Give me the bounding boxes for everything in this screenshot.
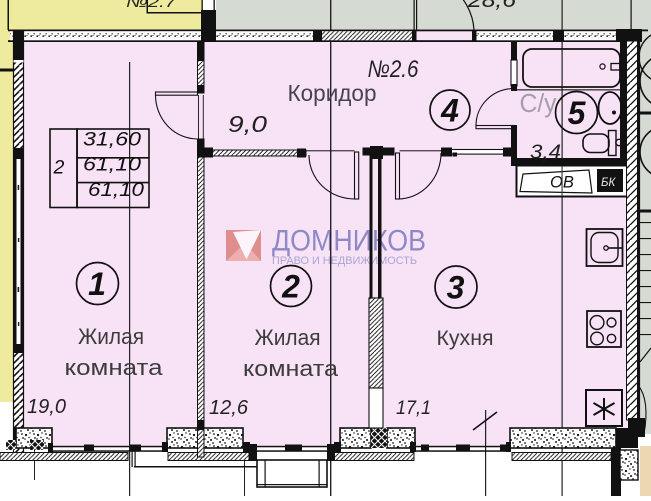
svg-text:3,4: 3,4	[530, 142, 561, 164]
svg-text:9,0: 9,0	[228, 111, 267, 137]
svg-text:3: 3	[447, 270, 465, 306]
svg-text:БК: БК	[601, 177, 616, 189]
svg-text:28,6: 28,6	[467, 0, 517, 12]
svg-text:31,60: 31,60	[83, 129, 141, 151]
svg-text:61,10: 61,10	[88, 179, 144, 201]
svg-text:12,6: 12,6	[209, 397, 249, 419]
svg-text:комната: комната	[243, 356, 339, 381]
svg-text:19,0: 19,0	[27, 396, 66, 418]
svg-text:комната: комната	[65, 355, 164, 380]
svg-text:№2.7: №2.7	[126, 0, 177, 11]
svg-text:2: 2	[281, 269, 300, 305]
svg-text:2: 2	[53, 157, 65, 179]
svg-text:5: 5	[568, 95, 587, 131]
svg-text:Коридор: Коридор	[288, 80, 377, 106]
svg-text:ДОМНИКОВ: ДОМНИКОВ	[272, 225, 426, 258]
svg-text:Жилая: Жилая	[78, 324, 144, 349]
svg-text:С/у: С/у	[520, 90, 557, 118]
svg-text:№2.6: №2.6	[368, 56, 420, 83]
svg-text:61,10: 61,10	[83, 154, 141, 176]
svg-text:1: 1	[88, 266, 106, 302]
svg-text:4: 4	[440, 93, 459, 129]
svg-text:Кухня: Кухня	[437, 326, 494, 350]
svg-text:17,1: 17,1	[396, 398, 431, 419]
svg-text:Жилая: Жилая	[255, 325, 321, 350]
